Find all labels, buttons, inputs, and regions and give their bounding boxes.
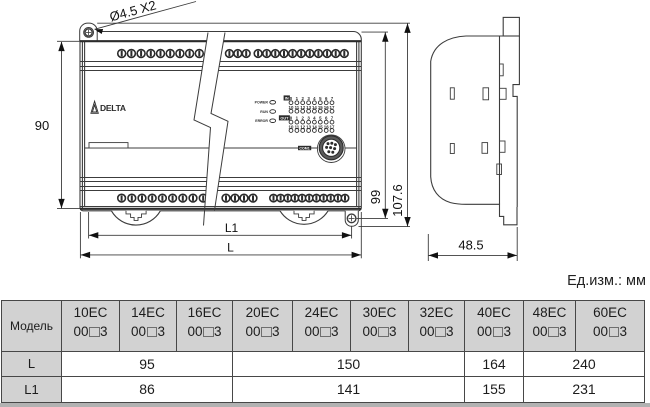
svg-text:ERROR: ERROR <box>255 119 268 123</box>
svg-text:90: 90 <box>35 118 49 133</box>
svg-text:OUT: OUT <box>280 116 289 120</box>
svg-text:RUN: RUN <box>260 110 268 114</box>
svg-text:POWER: POWER <box>255 101 269 105</box>
svg-text:99: 99 <box>368 190 383 204</box>
svg-text:L: L <box>227 241 234 255</box>
svg-text:L1: L1 <box>225 221 239 235</box>
svg-text:Ø4.5 X2: Ø4.5 X2 <box>108 0 158 24</box>
svg-text:48.5: 48.5 <box>458 238 483 253</box>
svg-text:IN: IN <box>285 97 289 101</box>
svg-text:COM1: COM1 <box>299 147 309 151</box>
svg-text:DELTA: DELTA <box>100 103 126 113</box>
svg-text:107.6: 107.6 <box>390 184 405 217</box>
